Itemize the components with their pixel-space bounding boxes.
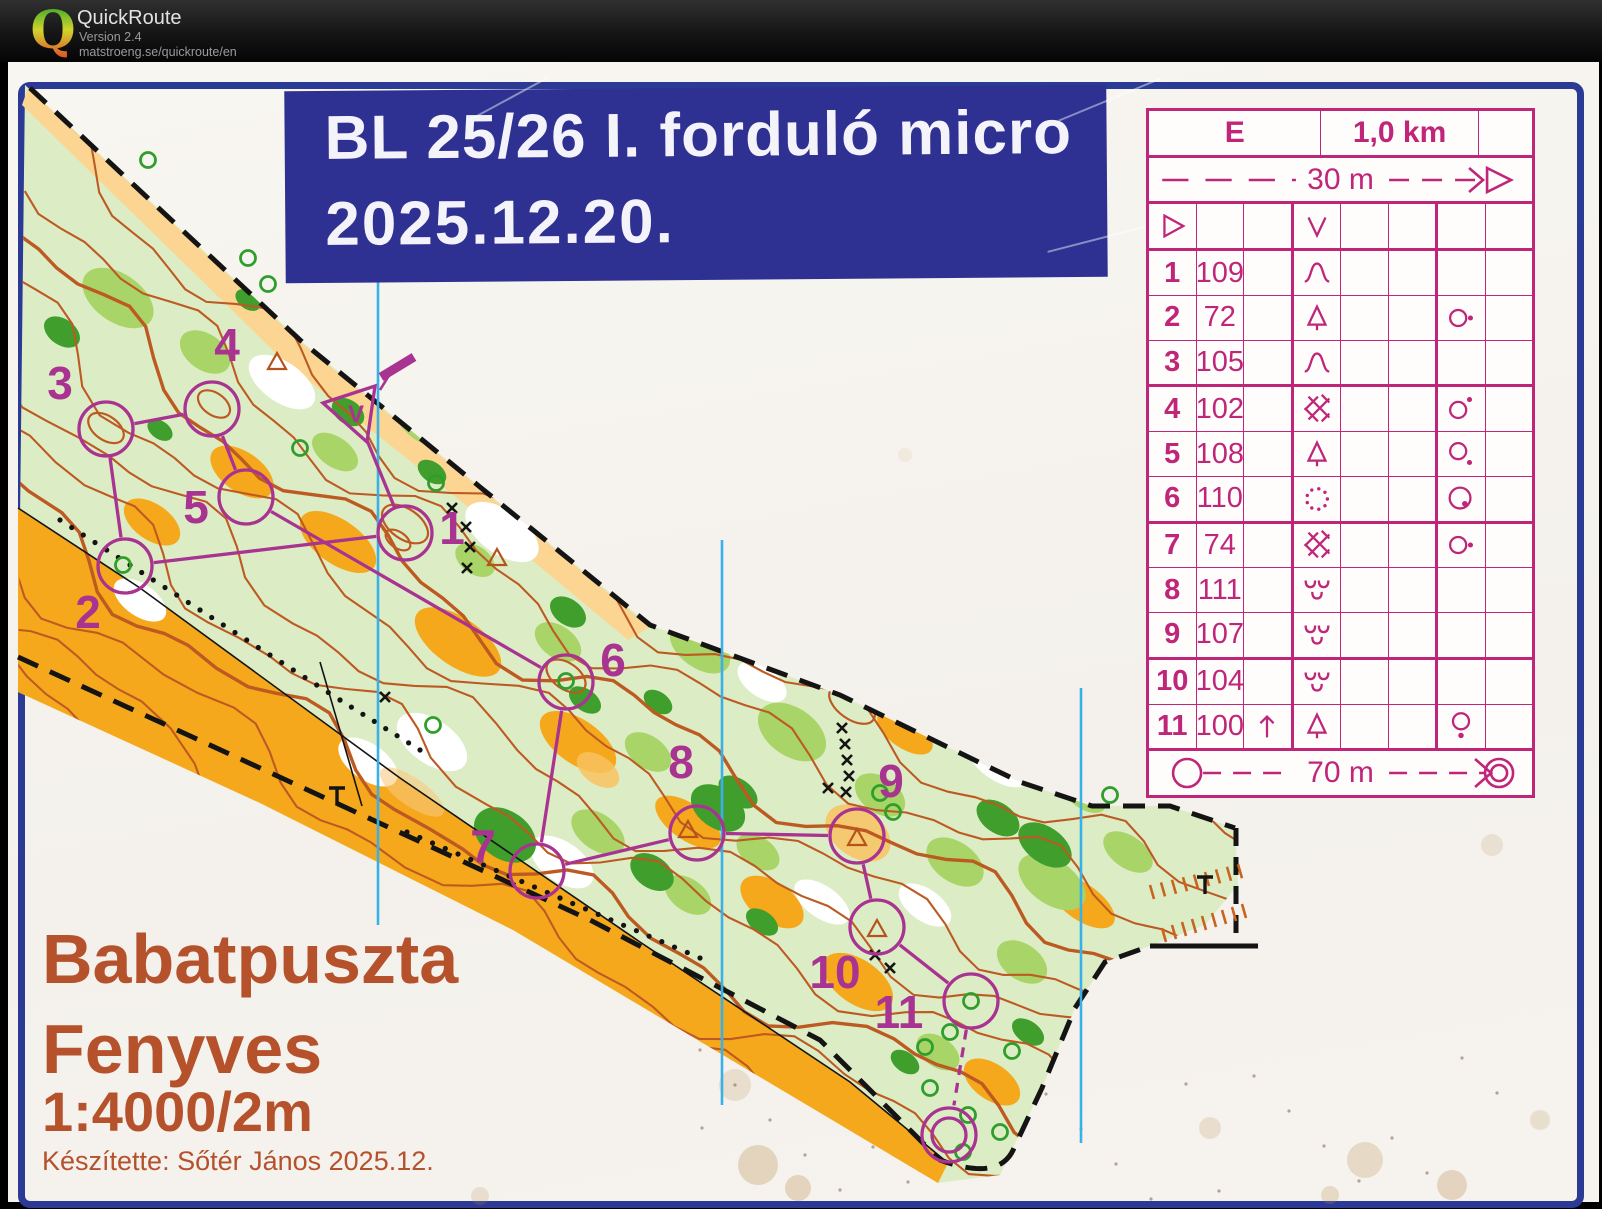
- col-f: [1389, 660, 1439, 704]
- map-scale: 1:4000/2m: [42, 1084, 313, 1140]
- svg-text:11: 11: [875, 986, 924, 1038]
- control-row-1: 1109: [1149, 251, 1532, 296]
- position-symbol: [1438, 613, 1486, 657]
- col-h: [1486, 204, 1533, 248]
- col-f: [1389, 524, 1439, 568]
- col-f: [1389, 204, 1439, 248]
- col-e: [1341, 660, 1389, 704]
- svg-text:2: 2: [75, 586, 101, 638]
- control-number: 9: [1149, 613, 1197, 657]
- svg-text:4: 4: [214, 319, 240, 371]
- feature-symbol: [1294, 387, 1342, 431]
- control-number: 5: [1149, 432, 1197, 476]
- control-row-5: 5108: [1149, 432, 1532, 477]
- control-code: 111: [1197, 568, 1245, 612]
- course-climb: [1479, 111, 1532, 155]
- feature-symbol: [1294, 613, 1342, 657]
- col-c-symbol: [1244, 660, 1294, 704]
- control-number: 2: [1149, 296, 1197, 340]
- svg-text:1: 1: [439, 502, 465, 554]
- col-e: [1341, 296, 1389, 340]
- event-banner: BL 25/26 I. forduló micro 2025.12.20.: [284, 85, 1107, 283]
- control-code: 102: [1197, 387, 1245, 431]
- control-number: 10: [1149, 660, 1197, 704]
- col-h: [1486, 477, 1533, 521]
- col-h: [1486, 387, 1533, 431]
- banner-event-date: 2025.12.20.: [325, 186, 675, 260]
- col-f: [1389, 251, 1439, 295]
- feature-symbol: [1294, 568, 1342, 612]
- svg-text:6: 6: [600, 634, 626, 686]
- scan-paper: 1234567891011V BL 25/26 I. forduló micro…: [8, 62, 1599, 1202]
- map-title-line2: Fenyves: [42, 1014, 322, 1084]
- control-code: 110: [1197, 477, 1245, 521]
- card-header-row: E 1,0 km: [1149, 111, 1532, 158]
- control-code: 100: [1197, 705, 1245, 749]
- col-f: [1389, 705, 1439, 749]
- map-credit: Készítette: Sőtér János 2025.12.: [42, 1148, 434, 1175]
- col-f: [1389, 387, 1439, 431]
- col-c-symbol: [1244, 387, 1294, 431]
- col-c-symbol: [1244, 204, 1294, 248]
- position-symbol: [1438, 660, 1486, 704]
- col-f: [1389, 568, 1439, 612]
- control-number: 6: [1149, 477, 1197, 521]
- position-symbol: [1438, 705, 1486, 749]
- course-class: E: [1149, 111, 1321, 155]
- col-e: [1341, 387, 1389, 431]
- control-code: 105: [1197, 341, 1245, 385]
- control-row-10: 10104: [1149, 660, 1532, 705]
- col-e: [1341, 524, 1389, 568]
- svg-text:9: 9: [878, 755, 904, 807]
- col-h: [1486, 296, 1533, 340]
- col-h: [1486, 524, 1533, 568]
- col-e: [1341, 204, 1389, 248]
- feature-symbol: [1294, 296, 1342, 340]
- control-row-3: 3105: [1149, 341, 1532, 388]
- col-c-symbol: [1244, 341, 1294, 385]
- svg-text:5: 5: [183, 481, 209, 533]
- dash-line: [1157, 160, 1301, 200]
- control-number: 8: [1149, 568, 1197, 612]
- dash-arrow-finish-icon: [1380, 753, 1524, 793]
- control-code: 74: [1197, 524, 1245, 568]
- banner-event-name: BL 25/26 I. forduló micro: [324, 97, 1072, 174]
- col-e: [1341, 613, 1389, 657]
- col-h: [1486, 705, 1533, 749]
- feature-symbol: [1294, 341, 1342, 385]
- position-symbol: [1438, 296, 1486, 340]
- start-distance: 30 m: [1307, 163, 1374, 197]
- col-c-symbol: [1244, 613, 1294, 657]
- position-symbol: [1438, 341, 1486, 385]
- svg-text:8: 8: [668, 736, 694, 788]
- svg-text:10: 10: [809, 946, 860, 998]
- control-description-card: E 1,0 km 30 m 11092723105410251086110774…: [1146, 108, 1535, 798]
- control-number: [1149, 204, 1197, 248]
- start-circle-dash-icon: [1157, 753, 1301, 793]
- control-row-8: 8111: [1149, 568, 1532, 613]
- control-number: 3: [1149, 341, 1197, 385]
- col-h: [1486, 568, 1533, 612]
- col-c-symbol: [1244, 477, 1294, 521]
- start-distance-row: 30 m: [1149, 158, 1532, 205]
- position-symbol: [1438, 204, 1486, 248]
- control-row-2: 272: [1149, 296, 1532, 341]
- feature-symbol: [1294, 660, 1342, 704]
- control-code: 72: [1197, 296, 1245, 340]
- col-c-symbol: [1244, 432, 1294, 476]
- svg-text:7: 7: [470, 820, 496, 872]
- col-e: [1341, 568, 1389, 612]
- feature-symbol: [1294, 432, 1342, 476]
- svg-text:V: V: [348, 401, 364, 428]
- col-c-symbol: [1244, 296, 1294, 340]
- control-row-9: 9107: [1149, 613, 1532, 660]
- position-symbol: [1438, 568, 1486, 612]
- map-title-line1: Babatpuszta: [42, 924, 458, 994]
- col-f: [1389, 296, 1439, 340]
- col-e: [1341, 477, 1389, 521]
- col-f: [1389, 613, 1439, 657]
- control-code: 104: [1197, 660, 1245, 704]
- control-row-6: 6110: [1149, 477, 1532, 524]
- position-symbol: [1438, 524, 1486, 568]
- control-number: 11: [1149, 705, 1197, 749]
- position-symbol: [1438, 477, 1486, 521]
- col-c-symbol: [1244, 524, 1294, 568]
- svg-text:3: 3: [47, 357, 73, 409]
- col-c-symbol: [1244, 705, 1294, 749]
- col-f: [1389, 341, 1439, 385]
- col-e: [1341, 705, 1389, 749]
- col-c-symbol: [1244, 251, 1294, 295]
- control-number: 7: [1149, 524, 1197, 568]
- col-c-symbol: [1244, 568, 1294, 612]
- dash-arrow-triangle-icon: [1380, 160, 1524, 200]
- control-row-4: 4102: [1149, 387, 1532, 432]
- control-code: [1197, 204, 1245, 248]
- finish-distance: 70 m: [1307, 756, 1374, 790]
- quickroute-window: { "window": { "app_name": "QuickRoute", …: [0, 0, 1602, 1209]
- feature-symbol: [1294, 477, 1342, 521]
- position-symbol: [1438, 387, 1486, 431]
- control-code: 109: [1197, 251, 1245, 295]
- col-h: [1486, 251, 1533, 295]
- feature-symbol: [1294, 204, 1342, 248]
- control-row-7: 774: [1149, 524, 1532, 569]
- control-row-start: [1149, 204, 1532, 251]
- position-symbol: [1438, 432, 1486, 476]
- finish-distance-row: 70 m: [1149, 751, 1532, 795]
- control-code: 108: [1197, 432, 1245, 476]
- col-f: [1389, 477, 1439, 521]
- position-symbol: [1438, 251, 1486, 295]
- control-number: 1: [1149, 251, 1197, 295]
- feature-symbol: [1294, 251, 1342, 295]
- col-f: [1389, 432, 1439, 476]
- col-h: [1486, 341, 1533, 385]
- col-h: [1486, 613, 1533, 657]
- control-code: 107: [1197, 613, 1245, 657]
- col-e: [1341, 432, 1389, 476]
- control-row-11: 11100: [1149, 705, 1532, 752]
- col-h: [1486, 660, 1533, 704]
- feature-symbol: [1294, 705, 1342, 749]
- col-e: [1341, 251, 1389, 295]
- control-number: 4: [1149, 387, 1197, 431]
- course-length: 1,0 km: [1321, 111, 1478, 155]
- feature-symbol: [1294, 524, 1342, 568]
- col-e: [1341, 341, 1389, 385]
- col-h: [1486, 432, 1533, 476]
